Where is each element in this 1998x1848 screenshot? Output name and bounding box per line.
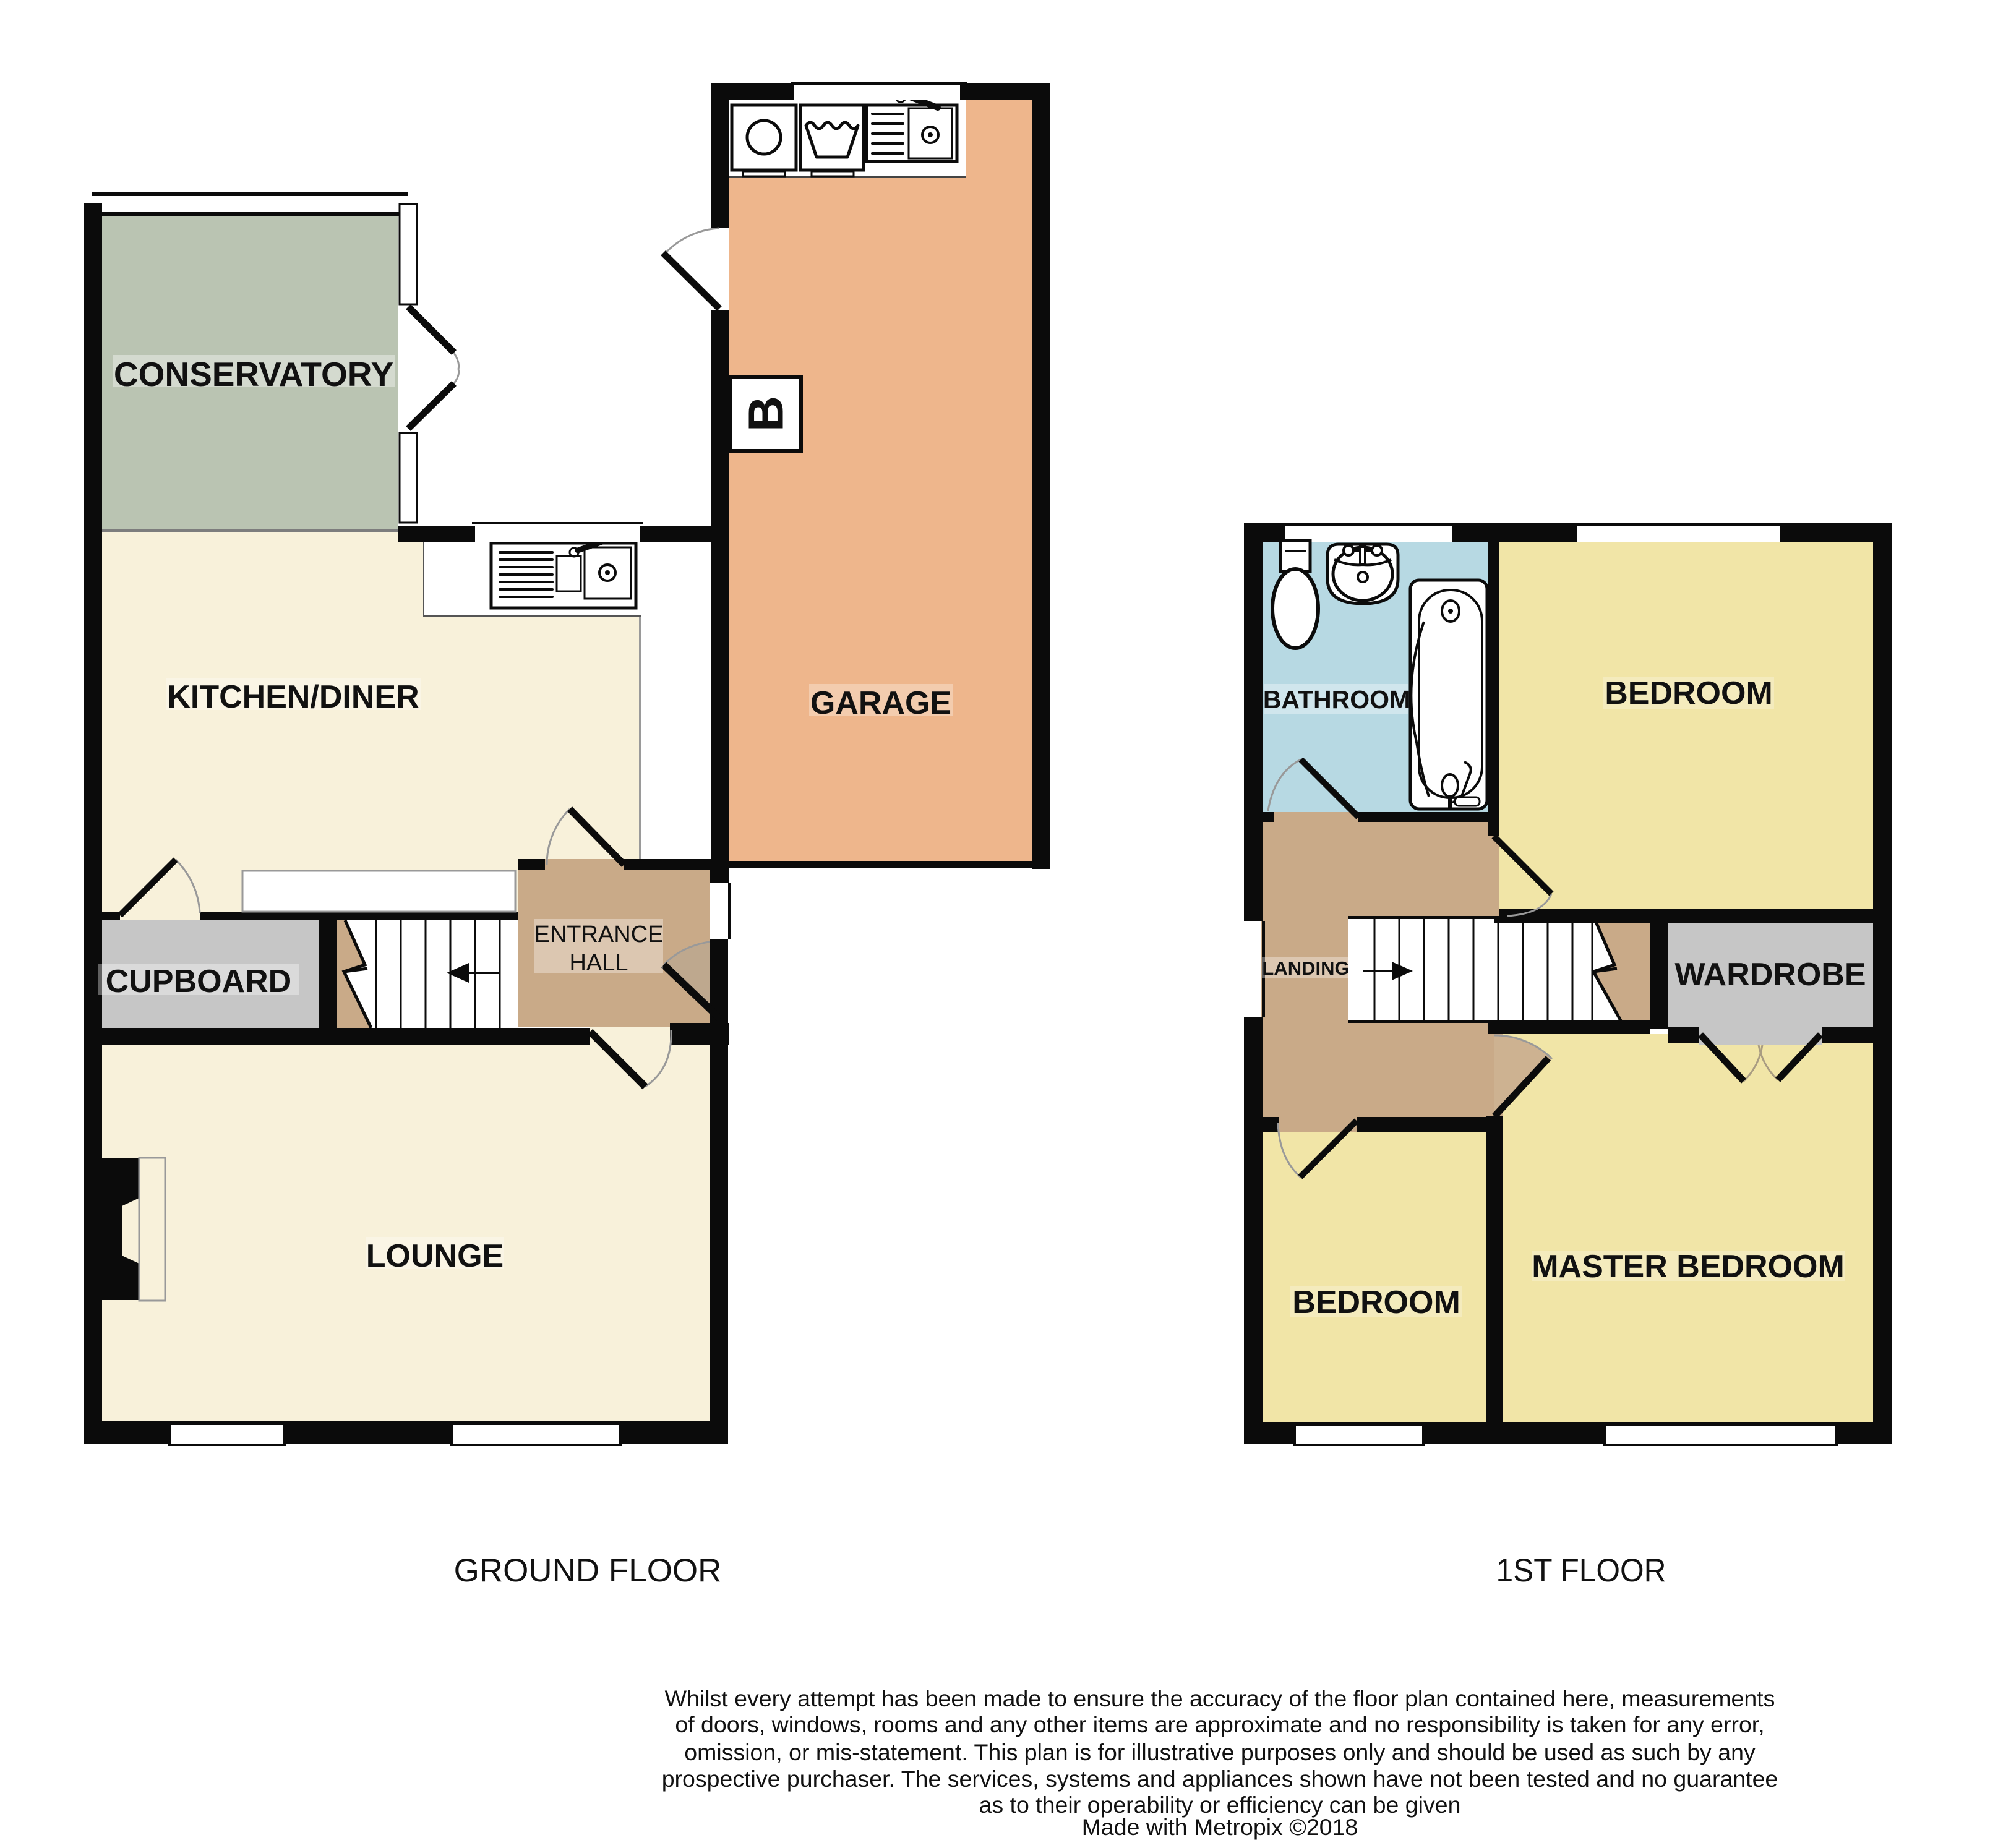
svg-text:LOUNGE: LOUNGE <box>366 1238 504 1274</box>
svg-text:omission, or mis-statement. Th: omission, or mis-statement. This plan is… <box>684 1739 1756 1765</box>
svg-text:GROUND FLOOR: GROUND FLOOR <box>454 1552 722 1589</box>
svg-text:MASTER BEDROOM: MASTER BEDROOM <box>1532 1249 1845 1285</box>
svg-text:Made with Metropix ©2018: Made with Metropix ©2018 <box>1082 1814 1358 1840</box>
svg-text:BEDROOM: BEDROOM <box>1292 1285 1460 1320</box>
svg-text:1ST FLOOR: 1ST FLOOR <box>1496 1552 1666 1589</box>
svg-text:of doors, windows, rooms and a: of doors, windows, rooms and any other i… <box>675 1711 1764 1737</box>
svg-text:LANDING: LANDING <box>1262 957 1349 979</box>
svg-text:CONSERVATORY: CONSERVATORY <box>114 355 393 393</box>
svg-text:BATHROOM: BATHROOM <box>1263 685 1410 714</box>
svg-text:ENTRANCE: ENTRANCE <box>534 922 663 948</box>
svg-text:GARAGE: GARAGE <box>810 685 951 721</box>
svg-text:CUPBOARD: CUPBOARD <box>106 964 291 999</box>
svg-text:BEDROOM: BEDROOM <box>1605 675 1773 711</box>
svg-text:B: B <box>739 396 794 432</box>
svg-text:Whilst every attempt has been: Whilst every attempt has been made to en… <box>665 1685 1775 1711</box>
svg-text:HALL: HALL <box>569 950 628 976</box>
svg-text:WARDROBE: WARDROBE <box>1674 957 1866 993</box>
svg-text:KITCHEN/DINER: KITCHEN/DINER <box>167 679 419 715</box>
svg-text:prospective purchaser. The ser: prospective purchaser. The services, sys… <box>662 1766 1778 1792</box>
